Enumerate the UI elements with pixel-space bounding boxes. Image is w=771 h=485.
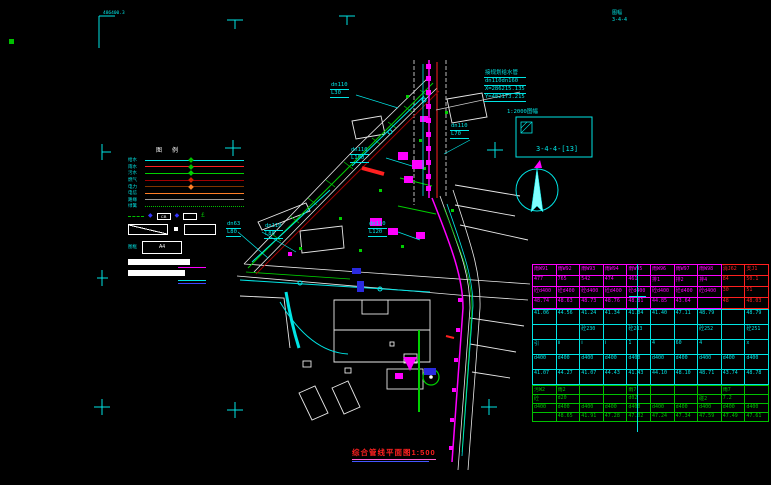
pipe-annotation-line: dn63 <box>226 221 241 229</box>
valve-diamond-icon: ◆ <box>175 213 180 219</box>
table-cell <box>674 395 698 404</box>
corner-label: 486400.3 <box>103 10 125 16</box>
pipe-annotation-line: L190 <box>350 155 369 163</box>
table-cell: d400 <box>745 404 769 413</box>
table-cell: 1 <box>627 340 651 355</box>
table-row: 41.0744.2741.0744.4341.4344.1048.1048.71… <box>533 370 769 385</box>
table-cell: 雨7 <box>627 386 651 395</box>
table-cell: 43.64 <box>674 298 698 309</box>
valve-diamond-icon: ◆ <box>148 213 153 219</box>
table-cell <box>650 395 674 404</box>
blue-sample-line <box>178 283 206 284</box>
table-cell: d400 <box>533 404 557 413</box>
a4-frame-box: A4 <box>142 241 182 254</box>
table-cell: 雨W95 <box>627 265 651 276</box>
index-box-caption: 1:2000图幅 <box>507 107 538 115</box>
table-cell: 48.03 <box>745 298 769 309</box>
lamp-symbol-icon: £ <box>201 213 204 219</box>
table-cell: 41.91 <box>580 413 604 422</box>
table-section-green: 污W2雨2雨7雨7砼d20d02碰27.2d400d400d400d400d40… <box>532 385 769 422</box>
table-cell: Ⅰ <box>603 340 627 355</box>
table-cell: 48.79 <box>698 310 722 325</box>
table-cell: d400 <box>721 355 745 370</box>
table-row: 477765542474461排1排2排48450.1 <box>533 276 769 287</box>
table-cell: 44.85 <box>650 298 674 309</box>
legend-line-sample <box>145 166 244 167</box>
table-cell: 雨W91 <box>533 265 557 276</box>
table-cell: d400 <box>603 355 627 370</box>
table-row: 砼230砼283砼252砼251 <box>533 325 769 340</box>
table-cell: 47.28 <box>603 413 627 422</box>
table-cell: d400 <box>674 355 698 370</box>
blue-markers <box>352 268 436 375</box>
pipe-annotation-line: L30 <box>330 90 349 98</box>
table-cell: 48.81 <box>627 298 651 309</box>
table-cell: 排1 <box>650 276 674 287</box>
table-cell <box>580 395 604 404</box>
table-cell <box>721 340 745 355</box>
table-cell: 支J1 <box>745 265 769 276</box>
crosshair-cursor[interactable] <box>629 296 646 297</box>
legend-row: 电信 <box>128 190 244 197</box>
table-cell <box>721 310 745 325</box>
legend-row-label: 电信 <box>128 190 145 196</box>
legend-line-sample <box>145 186 244 187</box>
building-outlines <box>240 93 528 420</box>
table-cell <box>603 395 627 404</box>
table-cell: 砼 <box>533 395 557 404</box>
legend-line-sample <box>145 173 244 174</box>
table-cell: 41.34 <box>603 310 627 325</box>
table-cell: 47.49 <box>721 413 745 422</box>
table-section-cyan: 41.0644.5641.2441.3441.0441.4047.1148.79… <box>532 309 769 385</box>
table-cell <box>698 386 722 395</box>
table-cell: d400 <box>650 355 674 370</box>
legend-row: 电力 <box>128 183 244 190</box>
sheet-corner-mark <box>99 16 115 48</box>
legend-row: 污水 <box>128 170 244 177</box>
table-cell: 48.63 <box>556 298 580 309</box>
table-cell: 41.07 <box>580 370 604 385</box>
table-cell <box>674 325 698 340</box>
table-cell: 48.76 <box>603 298 627 309</box>
table-row: 48.7448.6348.7348.7648.8144.8543.644848.… <box>533 298 769 309</box>
table-cell: 41.40 <box>650 310 674 325</box>
pipe-annotation: 接规划给水管dn110dn160X=286215.135Y=482173.215 <box>484 70 526 102</box>
table-cell: x <box>745 340 769 355</box>
legend-row: 绿篱 <box>128 203 244 210</box>
pipe-annotation-line: dn110 <box>368 221 387 229</box>
table-cell: 47.34 <box>674 413 698 422</box>
table-cell: 84 <box>721 276 745 287</box>
table-cell: 48.74 <box>533 298 557 309</box>
table-cell: d400 <box>627 404 651 413</box>
pipe-annotation: dn110L80 <box>264 223 283 239</box>
table-cell: 48.79 <box>745 310 769 325</box>
table-cell: 7.2 <box>721 395 745 404</box>
table-cell <box>580 386 604 395</box>
table-cell: 雨W97 <box>674 265 698 276</box>
table-cell: d400 <box>603 404 627 413</box>
cad-viewport: { "colors":{"cyan":"#00e5e5","magenta":"… <box>0 0 771 480</box>
table-cell <box>603 386 627 395</box>
table-cell: 砼d400 <box>698 287 722 298</box>
table-row: d400d400d400d400d400d400d400d400d400d400 <box>533 355 769 370</box>
pipe-annotation-line: 接规划给水管 <box>484 70 526 78</box>
table-cell: 排2 <box>674 276 698 287</box>
legend-rows: 给水雨水污水燃气电力电信路缘绿篱 <box>128 157 244 210</box>
table-row: 砼d20d02碰27.2 <box>533 395 769 404</box>
pipe-annotation-line: L80 <box>226 229 241 237</box>
legend-row: 给水 <box>128 157 244 164</box>
legend-row-label: 燃气 <box>128 177 145 183</box>
table-cell: d400 <box>698 355 722 370</box>
pipe-annotation-line: dn110 <box>450 123 469 131</box>
table-cell: 43.74 <box>721 370 745 385</box>
scale-bar-1 <box>128 259 190 265</box>
pipe-annotation-line: X=286215.135 <box>484 86 526 94</box>
table-cell: 砼d400 <box>556 287 580 298</box>
table-cell: 50.1 <box>745 276 769 287</box>
pipe-annotation: dn63L80 <box>226 221 241 237</box>
table-cell <box>674 386 698 395</box>
table-cell: 48.78 <box>745 370 769 385</box>
a4-label: A4 <box>159 244 165 250</box>
table-cell: 47.24 <box>650 413 674 422</box>
table-cell: 4 <box>698 340 722 355</box>
table-cell: d400 <box>580 355 604 370</box>
table-cell: 雨W98 <box>698 265 722 276</box>
pipe-annotation: dn110L190 <box>350 147 369 163</box>
green-dash-symbol <box>128 216 144 217</box>
table-cell: 雨7 <box>721 386 745 395</box>
cyan-pipeline <box>240 64 473 456</box>
table-cell <box>650 325 674 340</box>
pipe-annotation-line: Y=482173.215 <box>484 94 526 102</box>
table-cell: 44.43 <box>603 370 627 385</box>
table-cell: 排4 <box>698 276 722 287</box>
table-cell: 砼d400 <box>650 287 674 298</box>
table-cell: 48.71 <box>698 370 722 385</box>
legend-header: 图 例 <box>156 145 244 154</box>
table-cell: 477 <box>533 276 557 287</box>
table-cell <box>533 413 557 422</box>
legend-row-label: 路缘 <box>128 197 145 203</box>
table-cell: d20 <box>556 395 580 404</box>
legend-symbol-box2 <box>183 213 197 220</box>
legend-row-label: 污水 <box>128 170 145 176</box>
table-section-magenta: 雨W91雨W92雨W93雨W94雨W95雨W96雨W97雨W98消J62支J14… <box>532 264 769 309</box>
table-row: 污W2雨2雨7雨7 <box>533 386 769 395</box>
slope-symbol <box>128 224 168 235</box>
table-cell: 542 <box>580 276 604 287</box>
scale-bar-2 <box>128 270 185 276</box>
legend-symbols-row: ◆ CB ◆ £ <box>128 213 244 220</box>
title-underline-blue <box>352 461 429 462</box>
table-cell: 砼d400 <box>674 287 698 298</box>
pipe-annotation-line: dn110 <box>264 223 283 231</box>
magenta-sample-line <box>178 267 206 268</box>
crosshair-cursor[interactable] <box>637 264 638 432</box>
table-row: d400d400d400d400d400d400d400d400d400d400 <box>533 404 769 413</box>
table-cell: 砼251 <box>745 325 769 340</box>
legend-row-label: 电力 <box>128 184 145 190</box>
sheet-ref-line2: 3-4-4 <box>612 17 627 23</box>
sheet-ref-line1: 图幅 <box>612 9 622 16</box>
table-cell: 消J62 <box>721 265 745 276</box>
table-cell: 雨W93 <box>580 265 604 276</box>
table-cell: 47.02 <box>627 413 651 422</box>
table-cell: 污W2 <box>533 386 557 395</box>
green-corner-square <box>9 39 14 44</box>
table-cell: 砼230 <box>580 325 604 340</box>
table-cell: d400 <box>627 355 651 370</box>
table-cell <box>745 386 769 395</box>
table-cell: 30 <box>721 287 745 298</box>
square-symbol <box>174 227 178 231</box>
legend-row-label: 雨水 <box>128 164 145 170</box>
table-cell: 41.24 <box>580 310 604 325</box>
table-cell: 48.73 <box>580 298 604 309</box>
table-cell: 碰2 <box>698 395 722 404</box>
table-cell: 461 <box>627 276 651 287</box>
table-cell: 41.43 <box>627 370 651 385</box>
table-row: 41.0644.5641.2441.3441.0441.4047.1148.79… <box>533 310 769 325</box>
table-cell: d400 <box>650 404 674 413</box>
table-cell: 砼252 <box>698 325 722 340</box>
table-row: 引ⅡⅠⅠ14604x <box>533 340 769 355</box>
legend-row: 燃气 <box>128 177 244 184</box>
table-cell: 47.61 <box>745 413 769 422</box>
drawing-title-text: 综合管线平面图1:500 <box>352 448 436 457</box>
pipe-annotation-line: L70 <box>450 131 469 139</box>
table-cell: d02 <box>627 395 651 404</box>
table-cell: 47.11 <box>674 310 698 325</box>
title-underline-magenta <box>352 459 436 460</box>
table-cell: 砼d400 <box>533 287 557 298</box>
pipe-annotation-line: dn110dn160 <box>484 78 526 86</box>
table-cell <box>533 325 557 340</box>
pipe-annotation-line: dn110 <box>350 147 369 155</box>
table-cell: 雨W96 <box>650 265 674 276</box>
legend-line-sample <box>145 160 244 161</box>
legend-line-marker <box>188 184 194 190</box>
table-cell: d400 <box>698 404 722 413</box>
table-row: 砼d400砼d400砼d400砼d400砼d400砼d400砼d400砼d400… <box>533 287 769 298</box>
table-cell: 砼283 <box>627 325 651 340</box>
table-cell: d400 <box>580 404 604 413</box>
table-cell: 引 <box>533 340 557 355</box>
legend-block: 图 例 给水雨水污水燃气电力电信路缘绿篱 ◆ CB ◆ £ 图框 A4 <box>128 145 244 276</box>
pipe-annotation: dn110L120 <box>368 221 387 237</box>
legend-line-sample <box>145 206 244 207</box>
road-edges <box>237 60 530 470</box>
table-cell: 48.10 <box>674 370 698 385</box>
table-row: 雨W91雨W92雨W93雨W94雨W95雨W96雨W97雨W98消J62支J1 <box>533 265 769 276</box>
table-cell: 4 <box>650 340 674 355</box>
table-cell: 雨W92 <box>556 265 580 276</box>
table-cell: Ⅱ <box>556 340 580 355</box>
north-arrow <box>516 160 558 212</box>
table-row: 48.6541.9147.2847.0247.2447.3447.5947.49… <box>533 413 769 422</box>
table-cell: 雨2 <box>556 386 580 395</box>
legend-line-marker <box>188 171 194 177</box>
table-cell <box>745 395 769 404</box>
table-cell: 44.56 <box>556 310 580 325</box>
legend-row-label: 绿篱 <box>128 203 145 209</box>
table-cell <box>721 325 745 340</box>
table-cell <box>698 298 722 309</box>
table-cell: 41.04 <box>627 310 651 325</box>
table-cell: Ⅰ <box>580 340 604 355</box>
legend-a4-row: 图框 A4 <box>128 241 244 254</box>
legend-row: 雨水 <box>128 164 244 171</box>
frame-label: 图框 <box>128 244 137 250</box>
table-cell: 41.06 <box>533 310 557 325</box>
empty-box-symbol <box>184 224 216 235</box>
table-cell: 48 <box>721 298 745 309</box>
table-cell: 44.27 <box>556 370 580 385</box>
table-cell: 60 <box>674 340 698 355</box>
table-cell: 砼d400 <box>603 287 627 298</box>
legend-header-col2: 例 <box>172 145 178 154</box>
legend-line-marker <box>188 177 194 183</box>
table-cell <box>603 325 627 340</box>
cyan-sample-line <box>178 280 206 281</box>
table-cell: 41.07 <box>533 370 557 385</box>
pipe-annotation: dn110L30 <box>330 82 349 98</box>
table-cell: 砼d400 <box>580 287 604 298</box>
elevation-table: 雨W91雨W92雨W93雨W94雨W95雨W96雨W97雨W98消J62支J14… <box>532 264 769 422</box>
legend-row-label: 给水 <box>128 157 145 163</box>
table-cell: d400 <box>721 404 745 413</box>
table-cell: 765 <box>556 276 580 287</box>
index-box-code: 3-4-4-[13] <box>536 145 578 153</box>
pipe-annotation-line: L80 <box>264 231 283 239</box>
legend-line-sample <box>145 180 244 181</box>
legend-line-sample <box>145 199 244 200</box>
legend-row: 路缘 <box>128 197 244 204</box>
pipe-annotation: dn110L70 <box>450 123 469 139</box>
legend-line-sample <box>145 193 244 194</box>
pipe-annotation-line: L120 <box>368 229 387 237</box>
table-cell: d400 <box>674 404 698 413</box>
table-cell: 47.59 <box>698 413 722 422</box>
legend-line-marker <box>188 157 194 163</box>
table-cell <box>556 325 580 340</box>
pipe-annotation-line: dn110 <box>330 82 349 90</box>
table-cell: d400 <box>533 355 557 370</box>
table-cell: 44.10 <box>650 370 674 385</box>
drawing-title: 综合管线平面图1:500 <box>352 447 436 462</box>
table-cell: d400 <box>745 355 769 370</box>
table-cell: 51 <box>745 287 769 298</box>
legend-header-col1: 图 <box>156 145 162 154</box>
table-cell: 雨W94 <box>603 265 627 276</box>
table-cell: 474 <box>603 276 627 287</box>
table-cell <box>650 386 674 395</box>
table-cell: d400 <box>556 355 580 370</box>
table-cell: d400 <box>556 404 580 413</box>
table-cell: 48.65 <box>556 413 580 422</box>
legend-symbol-box1: CB <box>157 213 171 220</box>
